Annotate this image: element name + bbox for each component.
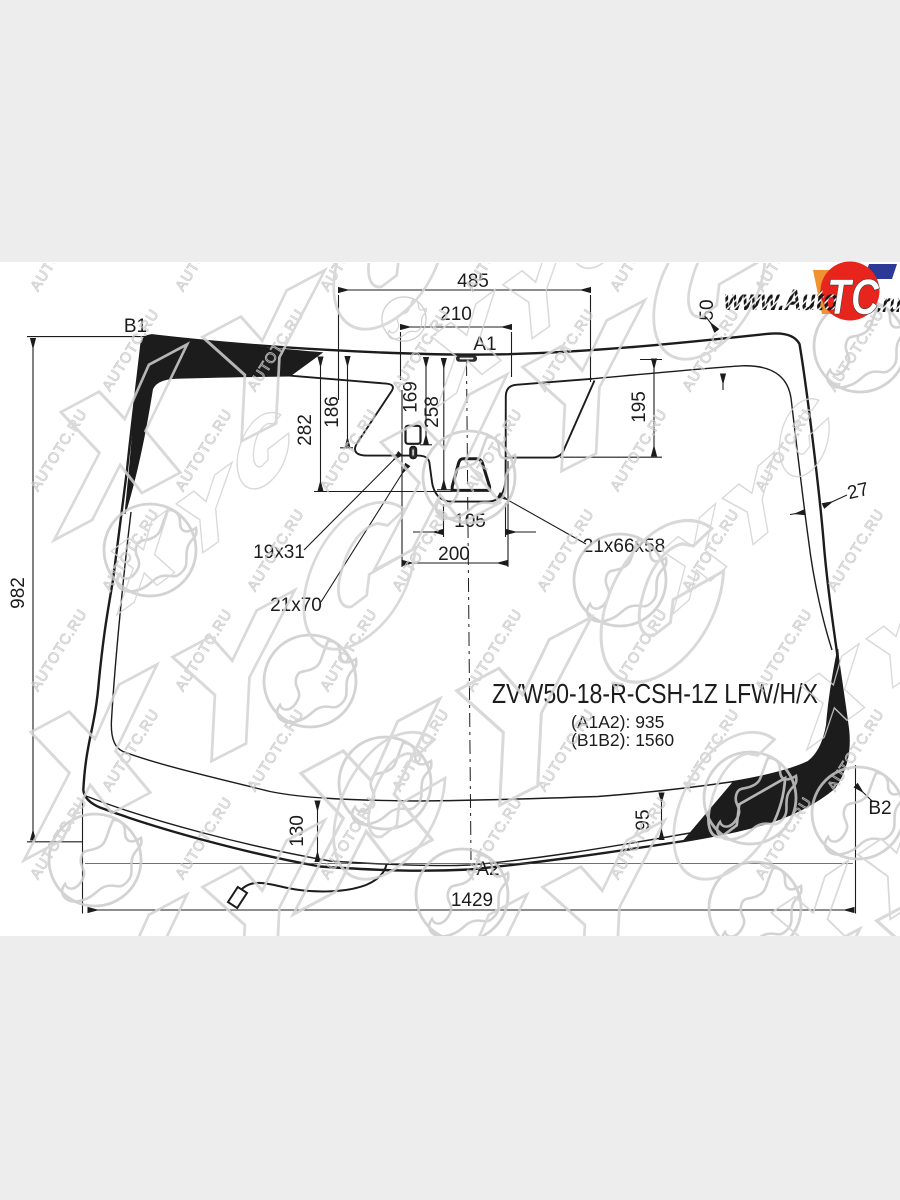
svg-text:TC: TC [827, 269, 880, 325]
svg-text:.ru: .ru [877, 288, 900, 318]
svg-text:282: 282 [295, 414, 316, 446]
svg-text:186: 186 [322, 396, 343, 428]
svg-text:195: 195 [629, 391, 650, 423]
svg-text:A1: A1 [473, 334, 496, 355]
svg-text:1429: 1429 [451, 890, 493, 911]
svg-text:B2: B2 [868, 798, 891, 819]
svg-text:200: 200 [438, 544, 470, 565]
svg-text:www.Auto: www.Auto [724, 284, 838, 317]
svg-text:982: 982 [8, 577, 29, 609]
